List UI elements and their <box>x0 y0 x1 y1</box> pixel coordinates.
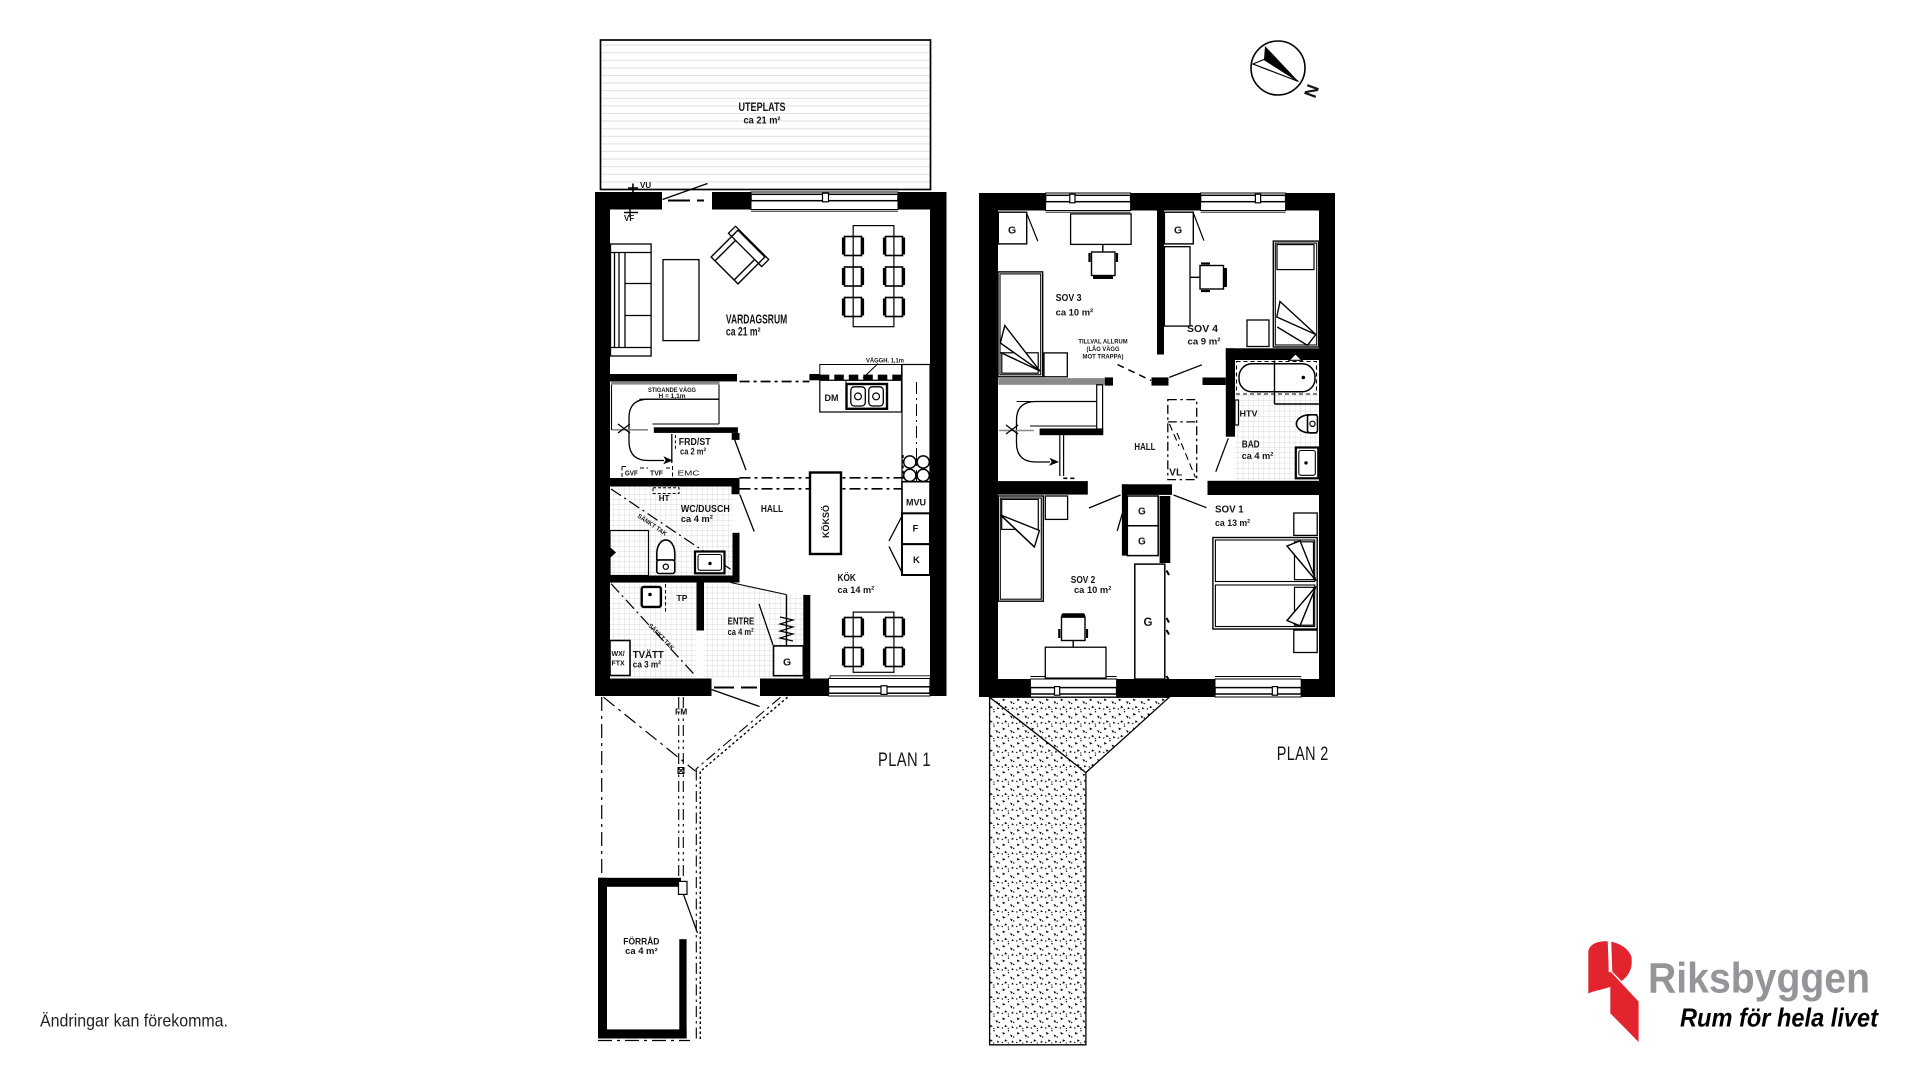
svg-text:H = 1,1m: H = 1,1m <box>659 393 686 400</box>
svg-text:G: G <box>1144 617 1153 629</box>
svg-text:ca 9 m²: ca 9 m² <box>1188 337 1221 348</box>
svg-text:ca 10 m²: ca 10 m² <box>1056 307 1094 318</box>
svg-text:G: G <box>1008 225 1016 237</box>
svg-text:HT: HT <box>659 494 670 503</box>
svg-text:KÖK: KÖK <box>838 571 857 584</box>
svg-text:KÖKSÖ: KÖKSÖ <box>821 505 832 538</box>
svg-text:HALL: HALL <box>761 503 784 515</box>
svg-text:SOV 1: SOV 1 <box>1215 505 1244 516</box>
svg-text:Riksbyggen: Riksbyggen <box>1648 956 1870 1003</box>
svg-text:TP: TP <box>677 593 688 603</box>
svg-text:ca 21 m²: ca 21 m² <box>744 115 781 127</box>
svg-text:G: G <box>1138 507 1146 518</box>
svg-text:HTV: HTV <box>1240 409 1258 419</box>
svg-text:BAD: BAD <box>1242 440 1260 451</box>
svg-text:K: K <box>913 555 920 566</box>
svg-text:ca 13 m²: ca 13 m² <box>1215 518 1250 529</box>
svg-text:HALL: HALL <box>1134 441 1155 453</box>
svg-text:G: G <box>1174 225 1182 237</box>
svg-text:ca 4 m²: ca 4 m² <box>681 514 713 525</box>
svg-text:MOT TRAPPA): MOT TRAPPA) <box>1083 353 1124 360</box>
svg-text:FM: FM <box>675 707 687 717</box>
svg-text:VF: VF <box>624 214 634 223</box>
svg-text:ca 4 m²: ca 4 m² <box>625 946 658 956</box>
svg-text:ca 10 m²: ca 10 m² <box>1074 585 1111 596</box>
svg-text:VARDAGSRUM: VARDAGSRUM <box>726 311 787 326</box>
svg-text:ca 4 m²: ca 4 m² <box>728 627 754 638</box>
svg-text:ca 4 m²: ca 4 m² <box>1242 451 1274 462</box>
svg-text:EMC: EMC <box>678 468 701 477</box>
svg-text:ca 3 m²: ca 3 m² <box>633 660 661 671</box>
svg-text:Ändringar kan förekomma.: Ändringar kan förekomma. <box>40 1011 228 1031</box>
svg-text:VL: VL <box>1169 468 1182 479</box>
svg-text:PLAN 1: PLAN 1 <box>878 749 931 771</box>
svg-text:VÄGGH. 1,1m: VÄGGH. 1,1m <box>866 357 904 364</box>
svg-text:SOV 4: SOV 4 <box>1187 324 1218 335</box>
svg-text:UTEPLATS: UTEPLATS <box>739 102 786 114</box>
svg-text:ca 14 m²: ca 14 m² <box>838 585 875 596</box>
svg-text:ca 2 m²: ca 2 m² <box>680 447 706 458</box>
svg-text:TVF: TVF <box>650 468 663 477</box>
svg-text:F: F <box>913 524 919 535</box>
svg-text:G: G <box>783 657 791 669</box>
svg-text:DM: DM <box>825 393 839 404</box>
svg-text:Rum för hela livet: Rum för hela livet <box>1680 1003 1879 1033</box>
svg-text:SOV 3: SOV 3 <box>1056 293 1082 304</box>
svg-text:PLAN 2: PLAN 2 <box>1277 743 1329 765</box>
svg-text:G: G <box>1138 537 1146 548</box>
svg-text:FTX: FTX <box>612 661 626 668</box>
svg-text:VU: VU <box>640 181 651 190</box>
svg-text:WX/: WX/ <box>612 651 625 658</box>
svg-text:TILLVAL ALLRUM: TILLVAL ALLRUM <box>1078 338 1128 345</box>
svg-text:MVU: MVU <box>906 498 926 508</box>
svg-text:GVF: GVF <box>625 468 638 477</box>
svg-text:(LÅG VÄGG: (LÅG VÄGG <box>1087 344 1120 353</box>
svg-text:ca 21 m²: ca 21 m² <box>726 327 761 339</box>
